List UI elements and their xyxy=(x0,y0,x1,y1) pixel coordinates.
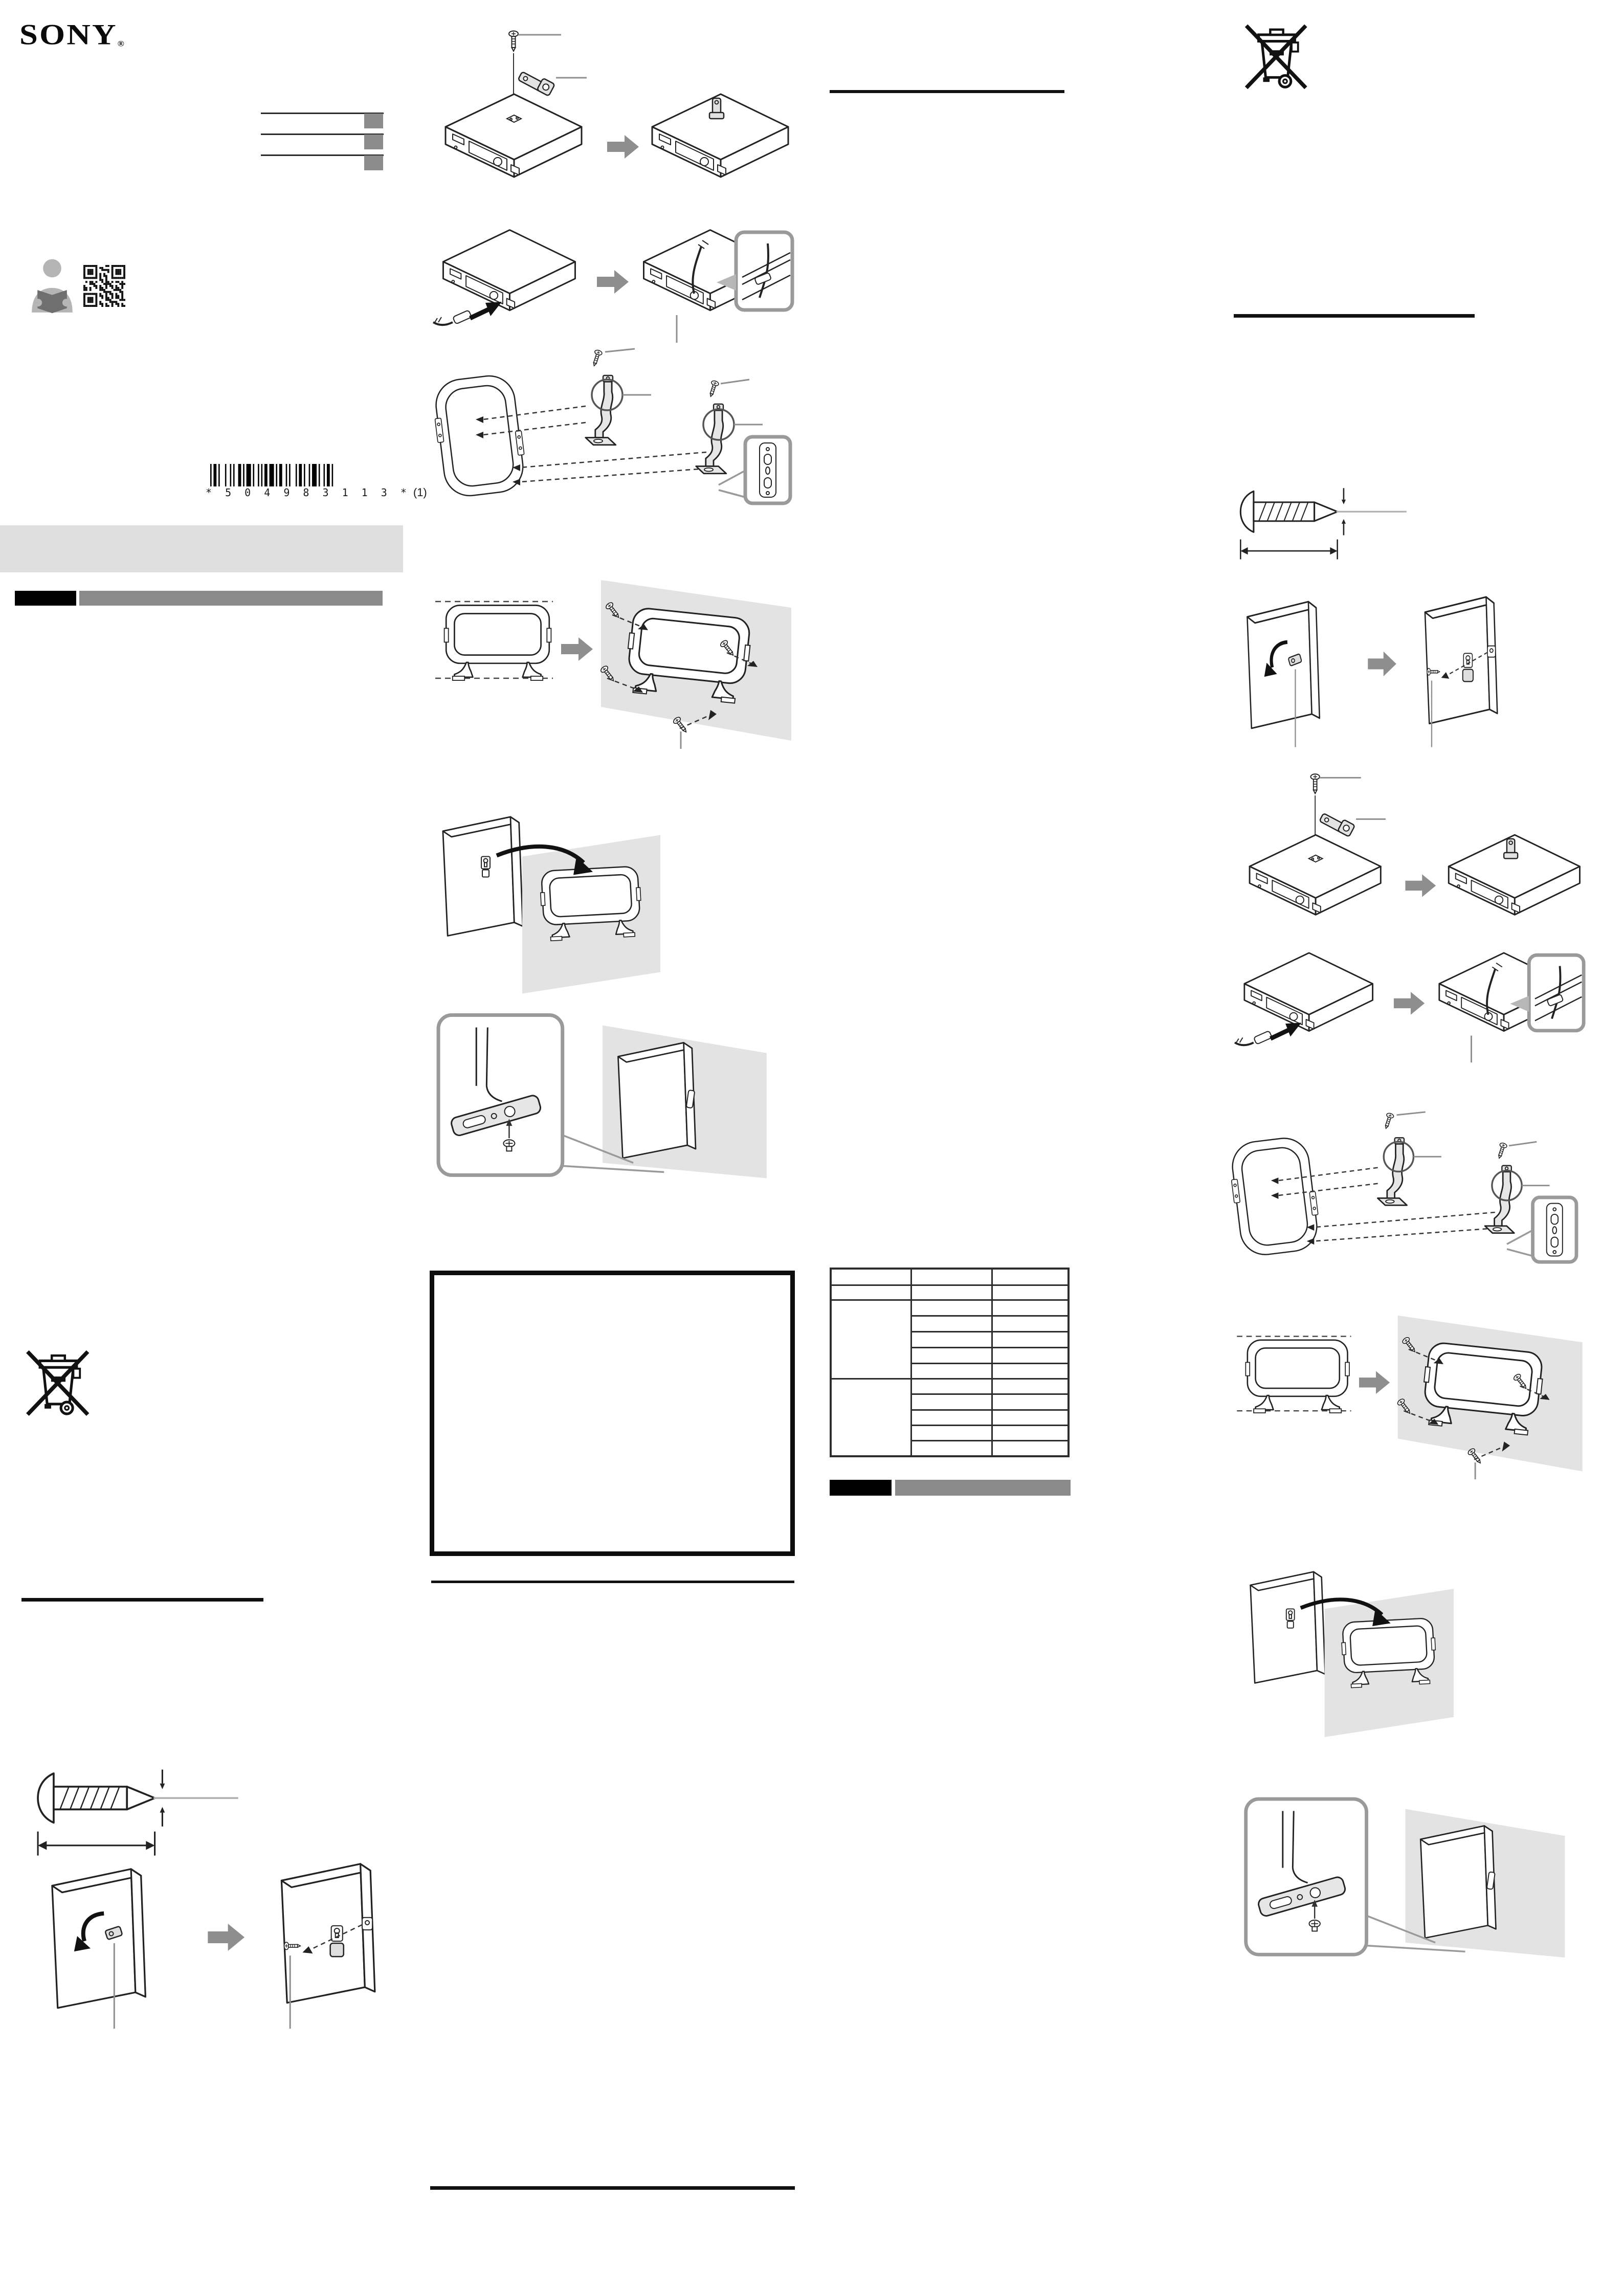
diagram-hang-on-wall xyxy=(432,802,795,1004)
table-row xyxy=(831,1300,1069,1316)
table-cell-merged xyxy=(831,1300,911,1379)
barcode-digits: * 5 0 4 9 8 3 1 1 3 * xyxy=(206,486,410,499)
table-row xyxy=(831,1269,1069,1285)
table-cell xyxy=(992,1347,1069,1363)
diagram-wall-mount-screws-right xyxy=(1234,1313,1587,1481)
spec-table xyxy=(830,1268,1070,1457)
table-cell xyxy=(992,1316,1069,1331)
rule-col3-top xyxy=(830,90,1064,93)
sony-logo: SONY® xyxy=(19,18,124,52)
table-cell xyxy=(911,1440,992,1456)
table-row xyxy=(831,1379,1069,1394)
section-bar-gray-col3 xyxy=(895,1480,1071,1496)
table-row xyxy=(831,1285,1069,1300)
barcode-bars xyxy=(210,464,335,486)
gray-band xyxy=(0,525,403,572)
registered-mark: ® xyxy=(118,39,124,48)
diagram-route-cable xyxy=(432,217,795,345)
diagram-wall-mount-screws xyxy=(432,577,795,751)
table-cell xyxy=(992,1394,1069,1410)
barcode-suffix: (1) xyxy=(413,486,427,499)
table-cell xyxy=(992,1440,1069,1456)
table-cell xyxy=(911,1331,992,1347)
screw-dimension-diagram-right xyxy=(1234,485,1412,569)
table-cell xyxy=(992,1425,1069,1440)
table-cell xyxy=(992,1410,1069,1425)
table-cell-merged xyxy=(831,1379,911,1456)
table-cell xyxy=(911,1363,992,1379)
diagram-attach-stands xyxy=(432,348,795,506)
diagram-hang-on-wall-right xyxy=(1240,1559,1580,1746)
table-cell xyxy=(911,1379,992,1394)
rule-col4-top xyxy=(1234,314,1475,318)
title-square-2 xyxy=(364,135,383,149)
rule-col2-mid xyxy=(431,1581,794,1583)
diagram-bracket-closeup-right xyxy=(1240,1793,1594,1965)
leaflet-page: SONY® * 5 0 4 9 8 3 1 1 3 *(1) xyxy=(0,0,1624,2289)
title-square-1 xyxy=(364,114,383,128)
table-cell xyxy=(911,1285,992,1300)
table-cell xyxy=(911,1425,992,1440)
rule-col2-bottom xyxy=(430,2186,795,2190)
table-cell xyxy=(992,1379,1069,1394)
table-cell xyxy=(992,1285,1069,1300)
rule-left-column xyxy=(21,1598,263,1602)
sony-logo-text: SONY xyxy=(19,19,118,51)
table-cell xyxy=(911,1410,992,1425)
section-bar-black-left xyxy=(15,591,76,606)
diagram-attach-stands-right xyxy=(1229,1111,1582,1265)
table-cell xyxy=(911,1394,992,1410)
notice-box xyxy=(430,1271,795,1556)
diagram-bracket-closeup xyxy=(432,1009,796,1186)
diagram-rotate-bracket-left xyxy=(27,1848,423,2033)
barcode-text: * 5 0 4 9 8 3 1 1 3 *(1) xyxy=(206,486,359,499)
table-cell xyxy=(911,1300,992,1316)
table-cell xyxy=(831,1269,911,1285)
diagram-attach-bracket-right xyxy=(1237,770,1587,932)
table-cell xyxy=(911,1316,992,1331)
table-cell xyxy=(992,1331,1069,1347)
spec-table-wrap xyxy=(830,1268,1070,1457)
table-cell xyxy=(911,1269,992,1285)
reader-icon xyxy=(28,256,77,313)
section-bar-black-col3 xyxy=(830,1480,892,1496)
table-cell xyxy=(992,1300,1069,1316)
table-cell xyxy=(992,1269,1069,1285)
weee-icon-right xyxy=(1238,15,1316,96)
diagram-route-cable-right xyxy=(1234,940,1587,1064)
table-cell xyxy=(992,1363,1069,1379)
section-bar-gray-left xyxy=(79,591,383,606)
qr-code xyxy=(83,265,125,307)
title-square-3 xyxy=(364,155,383,170)
table-cell xyxy=(831,1285,911,1300)
table-cell xyxy=(911,1347,992,1363)
diagram-attach-bracket xyxy=(432,27,795,195)
weee-icon-left xyxy=(19,1341,97,1423)
diagram-rotate-bracket-right xyxy=(1228,582,1534,751)
